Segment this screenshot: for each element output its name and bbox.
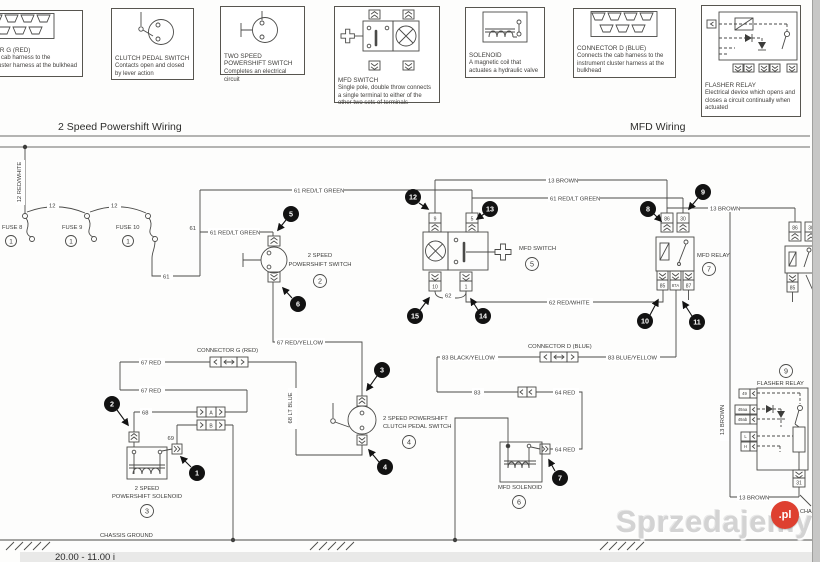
component-label: 2 SPEED: [135, 486, 160, 492]
wire-68-lt-blue: [248, 362, 362, 455]
wires: [23, 145, 814, 542]
wire-label: 13 BROWN: [739, 496, 769, 502]
terminal-87a: 87A: [672, 283, 680, 288]
terminal-30: 30: [680, 217, 686, 223]
watermark-pl-badge: .pl: [771, 501, 799, 529]
footer-band: 20.00 - 11.00 i: [20, 552, 820, 562]
connector-a-row: A: [197, 407, 225, 417]
callout-7: 7: [558, 474, 562, 483]
wire-label: 61 RED/LT GREEN: [210, 231, 260, 237]
wire-label: 12: [49, 204, 55, 210]
wire-ground-b: [225, 425, 233, 540]
fuse-label: FUSE 9: [62, 225, 82, 231]
terminal-86: 86: [792, 226, 798, 232]
powershift-switch: 2 SPEED POWERSHIFT SWITCH 2: [243, 236, 352, 288]
fuse-8: FUSE 8 1: [2, 214, 35, 247]
callout-1: 1: [195, 469, 199, 478]
ref-number: 1: [9, 239, 13, 246]
mfd-switch: 9 5 10 1 MFD SWITCH 5: [423, 213, 556, 291]
callout-3: 3: [380, 366, 384, 375]
component-label: CLUTCH PEDAL SWITCH: [383, 424, 451, 430]
callout-9: 9: [701, 188, 705, 197]
wire-label: 83 BLACK/YELLOW: [442, 356, 495, 362]
wire-label: 69: [168, 436, 174, 442]
callout-4: 4: [383, 463, 387, 472]
component-label: POWERSHIFT SWITCH: [288, 262, 351, 268]
terminal-49ab: 49ab: [738, 417, 748, 422]
wire-label: 12: [111, 204, 117, 210]
chassis-ground-label: CHASSIS GROUND: [100, 533, 153, 539]
wire-label: 13 BROWN: [548, 179, 578, 185]
ref-number: 2: [318, 277, 322, 286]
mfd-relay: 86 30 85 87A 87 MFD RELAY 7: [656, 213, 730, 290]
wire-labels: 12 RED/WHITE 12 12 61 61 61 RED/LT GREEN…: [16, 160, 769, 502]
terminal-10: 10: [432, 285, 438, 291]
component-label: POWERSHIFT SOLENOID: [112, 494, 182, 500]
ref-number: 5: [530, 260, 534, 269]
callout-2: 2: [110, 400, 114, 409]
component-label: MFD SWITCH: [519, 246, 556, 252]
wire-label: 12 RED/WHITE: [17, 162, 23, 203]
page-edge-strip: [812, 0, 820, 562]
ref-number: 3: [145, 507, 149, 516]
callout-6: 6: [296, 300, 300, 309]
callout-15: 15: [411, 312, 419, 321]
wire-label: 64 RED: [555, 448, 575, 454]
wire-label: 61: [163, 275, 169, 281]
terminal-86: 86: [664, 217, 670, 223]
terminal-h: H: [744, 444, 747, 449]
wire-68: [134, 412, 197, 447]
component-label: FLASHER RELAY: [757, 381, 804, 387]
terminal-85: 85: [790, 286, 796, 292]
fuse-label: FUSE 8: [2, 225, 22, 231]
fuse-10: FUSE 10 1: [116, 214, 158, 247]
mfd-solenoid: MFD SOLENOID 6: [498, 442, 550, 509]
wire-12-arcs: [27, 207, 146, 213]
header: 2 Speed Powershift Wiring MFD Wiring: [0, 121, 810, 147]
wire-label: 83 BLUE/YELLOW: [608, 356, 658, 362]
terminal-b: B: [209, 424, 213, 430]
callout-12: 12: [409, 193, 417, 202]
callout-14: 14: [479, 312, 487, 321]
ref-number: 6: [517, 498, 521, 507]
ref-number: 1: [126, 239, 130, 246]
wire-label: 61: [190, 226, 196, 232]
flasher-relay: 9 FLASHER RELAY 49 49aa 49ab L H 31: [735, 365, 808, 488]
wire-label: 13 BROWN: [720, 405, 726, 435]
connector-83-64: [518, 387, 536, 397]
wire-13-brown: [435, 180, 811, 506]
wire-69: [177, 425, 197, 444]
section-title-right: MFD Wiring: [630, 121, 686, 133]
ref-number: 1: [69, 239, 73, 246]
terminal-1: 1: [465, 285, 468, 291]
terminal-87: 87: [686, 284, 692, 290]
wire-label: 13 BROWN: [710, 207, 740, 213]
component-label: MFD SOLENOID: [498, 485, 542, 491]
wire-label: 83: [474, 391, 480, 397]
ref-number: 7: [707, 265, 711, 274]
terminal-49aa: 49aa: [738, 407, 748, 412]
section-title-left: 2 Speed Powershift Wiring: [58, 121, 182, 133]
wire-label: 68 LT BLUE: [288, 392, 294, 423]
terminal-l: L: [744, 434, 747, 439]
clutch-pedal-switch: 2 SPEED POWERSHIFT CLUTCH PEDAL SWITCH 4: [331, 396, 452, 449]
connector-b-row: B: [197, 420, 225, 430]
powershift-solenoid: 2 SPEED POWERSHIFT SOLENOID 3: [112, 432, 182, 518]
wire-label: 61 RED/LT GREEN: [294, 189, 344, 195]
wire-83-64: [437, 290, 676, 449]
component-label: MFD RELAY: [697, 253, 730, 259]
ref-number: 4: [407, 438, 411, 447]
wire-label: 68: [142, 411, 148, 417]
connector-g: CONNECTOR G (RED): [197, 348, 258, 367]
wire-label: 62: [445, 294, 451, 300]
connector-d: CONNECTOR D (BLUE): [528, 344, 592, 362]
wire-label: 67 RED: [141, 361, 161, 367]
page: CONNECTOR G (RED) Connects the cab harne…: [0, 0, 820, 562]
callout-10: 10: [641, 317, 649, 326]
callout-13: 13: [486, 205, 494, 214]
footer-text: 20.00 - 11.00 i: [55, 552, 115, 562]
component-label: 2 SPEED POWERSHIFT: [383, 416, 448, 422]
component-label: 2 SPEED: [308, 253, 333, 259]
fuse-label: FUSE 10: [116, 225, 140, 231]
ref-number: 9: [784, 367, 788, 376]
callout-5: 5: [289, 210, 293, 219]
fuse-9: FUSE 9 1: [62, 214, 97, 247]
connector-label: CONNECTOR D (BLUE): [528, 344, 592, 350]
wire-label: 64 RED: [555, 391, 575, 397]
callout-11: 11: [693, 318, 701, 327]
wiring-schematic: 2 Speed Powershift Wiring MFD Wiring: [0, 0, 820, 562]
wire-label: 67 RED/YELLOW: [277, 341, 324, 347]
terminal-5: 5: [471, 217, 474, 223]
terminal-85: 85: [660, 284, 666, 290]
terminal-49: 49: [742, 391, 747, 396]
wire-label: 61 RED/LT GREEN: [550, 197, 600, 203]
wire-label: 67 RED: [141, 389, 161, 395]
terminal-31: 31: [796, 481, 802, 487]
callout-8: 8: [646, 205, 650, 214]
connector-label: CONNECTOR G (RED): [197, 348, 258, 354]
wire-label: 62 RED/WHITE: [549, 301, 590, 307]
terminal-9: 9: [434, 217, 437, 223]
terminal-a: A: [209, 411, 213, 417]
